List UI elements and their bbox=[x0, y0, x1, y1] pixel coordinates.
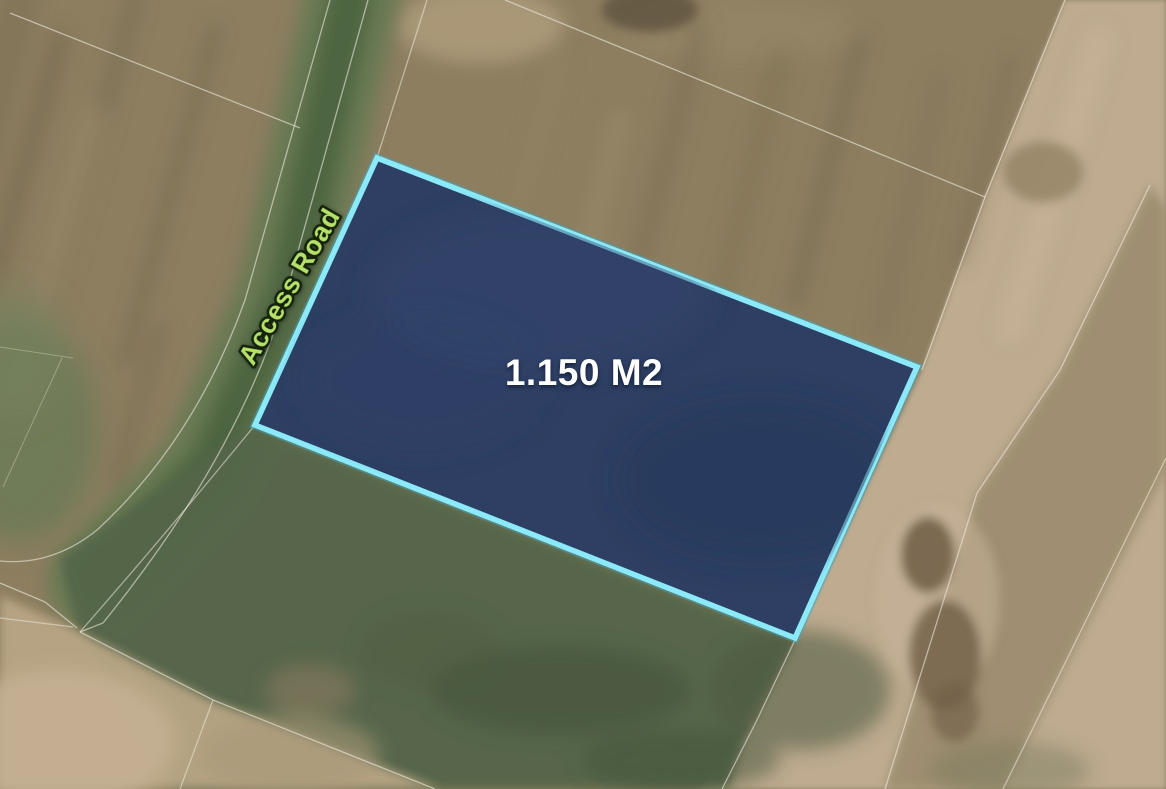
parcel-area-label: 1.150 M2 bbox=[505, 352, 663, 393]
satellite-map: 1.150 M2 Access Road bbox=[0, 0, 1166, 789]
map-canvas: 1.150 M2 Access Road bbox=[0, 0, 1166, 789]
